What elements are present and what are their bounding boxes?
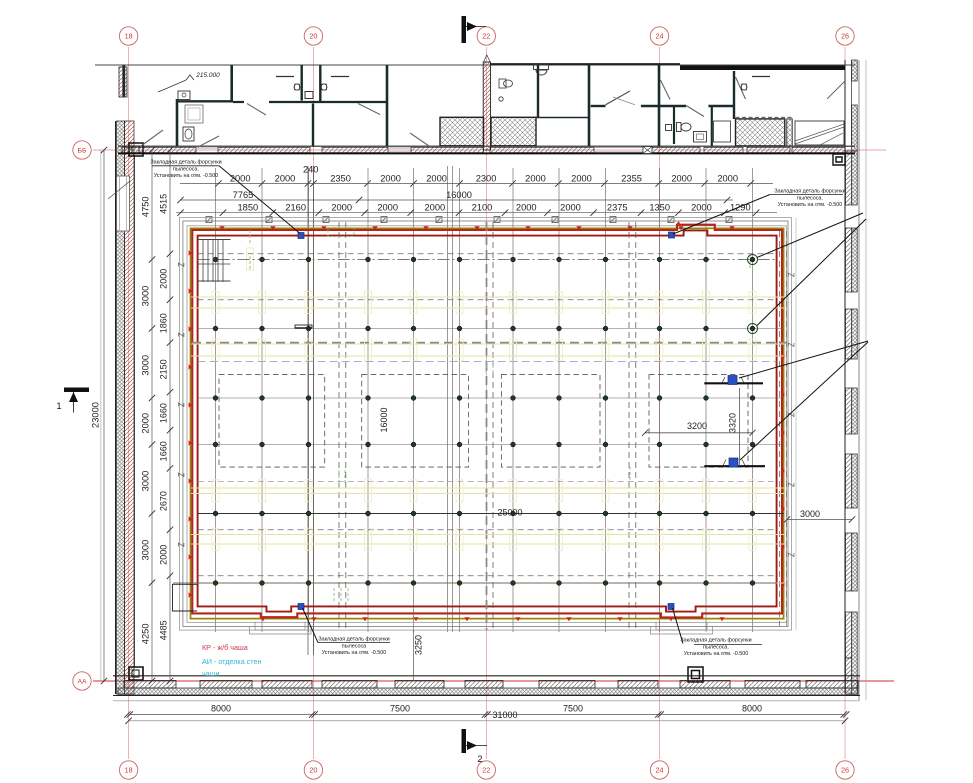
svg-text:1290: 1290 xyxy=(730,203,751,213)
svg-text:3000: 3000 xyxy=(800,509,820,519)
svg-text:2000: 2000 xyxy=(377,203,398,213)
svg-text:чаши: чаши xyxy=(202,669,220,678)
svg-text:24: 24 xyxy=(656,32,664,41)
svg-text:Закладная деталь форсунки: Закладная деталь форсунки xyxy=(150,160,221,166)
svg-text:4485: 4485 xyxy=(159,620,169,640)
svg-text:8000: 8000 xyxy=(742,704,762,714)
svg-text:2000: 2000 xyxy=(571,174,592,184)
svg-text:3000: 3000 xyxy=(141,355,151,376)
svg-text:26: 26 xyxy=(841,766,849,775)
svg-text:1860: 1860 xyxy=(159,313,169,333)
svg-text:20: 20 xyxy=(309,766,317,775)
svg-text:20: 20 xyxy=(309,32,317,41)
svg-text:240: 240 xyxy=(303,165,319,175)
svg-text:31000: 31000 xyxy=(492,710,517,720)
svg-text:7500: 7500 xyxy=(563,704,583,714)
svg-text:18: 18 xyxy=(125,766,133,775)
svg-text:16000: 16000 xyxy=(379,407,389,432)
svg-text:2000: 2000 xyxy=(671,174,692,184)
svg-text:23000: 23000 xyxy=(91,402,101,428)
svg-text:Установить на отм. -0.500: Установить на отм. -0.500 xyxy=(778,202,843,208)
svg-text:пылесоса.: пылесоса. xyxy=(703,644,729,650)
svg-text:22: 22 xyxy=(482,32,490,41)
svg-text:2000: 2000 xyxy=(380,174,401,184)
svg-text:ББ: ББ xyxy=(78,148,87,155)
svg-text:АИ - отделка стен: АИ - отделка стен xyxy=(202,657,261,666)
svg-text:26: 26 xyxy=(841,32,849,41)
svg-text:7500: 7500 xyxy=(390,704,410,714)
svg-text:2000: 2000 xyxy=(426,174,447,184)
svg-text:4250: 4250 xyxy=(141,624,151,645)
svg-text:215.000: 215.000 xyxy=(195,72,220,79)
svg-text:2670: 2670 xyxy=(159,491,169,511)
svg-text:3320: 3320 xyxy=(728,413,738,433)
svg-text:2160: 2160 xyxy=(285,203,306,213)
svg-text:1660: 1660 xyxy=(159,441,169,461)
svg-text:Установить на отм. -0.500: Установить на отм. -0.500 xyxy=(684,651,749,657)
svg-text:пылесоса.: пылесоса. xyxy=(173,166,199,172)
svg-text:2150: 2150 xyxy=(159,359,169,379)
svg-text:4750: 4750 xyxy=(141,196,151,217)
svg-text:8000: 8000 xyxy=(211,704,231,714)
svg-text:2300: 2300 xyxy=(476,174,497,184)
svg-text:2000: 2000 xyxy=(717,174,738,184)
svg-text:Установить на отм. -0.500: Установить на отм. -0.500 xyxy=(154,173,219,179)
svg-text:пылесоса: пылесоса xyxy=(342,643,366,649)
svg-text:АА: АА xyxy=(77,679,87,686)
svg-text:Закладная деталь форсунки: Закладная деталь форсунки xyxy=(680,638,751,644)
svg-text:3000: 3000 xyxy=(141,540,151,561)
svg-text:Закладная деталь форсунки: Закладная деталь форсунки xyxy=(774,189,845,195)
svg-text:1: 1 xyxy=(56,401,61,411)
svg-text:2000: 2000 xyxy=(425,203,446,213)
svg-text:3250: 3250 xyxy=(414,635,424,655)
svg-text:2000: 2000 xyxy=(560,203,581,213)
svg-text:2355: 2355 xyxy=(621,174,642,184)
svg-text:1660: 1660 xyxy=(159,403,169,423)
svg-text:1850: 1850 xyxy=(238,203,259,213)
svg-text:3200: 3200 xyxy=(687,421,707,431)
svg-text:Установить на отм. -0.500: Установить на отм. -0.500 xyxy=(322,650,387,656)
svg-text:2000: 2000 xyxy=(159,545,169,565)
svg-text:2000: 2000 xyxy=(230,174,251,184)
svg-text:3000: 3000 xyxy=(141,286,151,307)
svg-text:25000: 25000 xyxy=(497,508,522,518)
svg-text:2000: 2000 xyxy=(525,174,546,184)
svg-text:16000: 16000 xyxy=(446,190,472,200)
svg-text:4515: 4515 xyxy=(159,194,169,214)
svg-text:2000: 2000 xyxy=(516,203,537,213)
svg-text:Закладная деталь форсунки: Закладная деталь форсунки xyxy=(318,637,389,643)
svg-text:2000: 2000 xyxy=(141,413,151,434)
svg-text:КР - ж/б чаша: КР - ж/б чаша xyxy=(202,643,248,652)
svg-text:2000: 2000 xyxy=(275,174,296,184)
svg-text:2000: 2000 xyxy=(159,269,169,289)
svg-text:22: 22 xyxy=(482,766,490,775)
svg-text:24: 24 xyxy=(656,766,664,775)
svg-text:2000: 2000 xyxy=(691,203,712,213)
svg-text:2375: 2375 xyxy=(607,203,628,213)
svg-text:18: 18 xyxy=(125,32,133,41)
svg-text:2000: 2000 xyxy=(331,203,352,213)
svg-text:2: 2 xyxy=(477,754,482,764)
svg-text:пылесоса.: пылесоса. xyxy=(797,195,823,201)
svg-text:2350: 2350 xyxy=(330,174,351,184)
svg-text:2100: 2100 xyxy=(472,203,493,213)
svg-text:3000: 3000 xyxy=(141,471,151,492)
